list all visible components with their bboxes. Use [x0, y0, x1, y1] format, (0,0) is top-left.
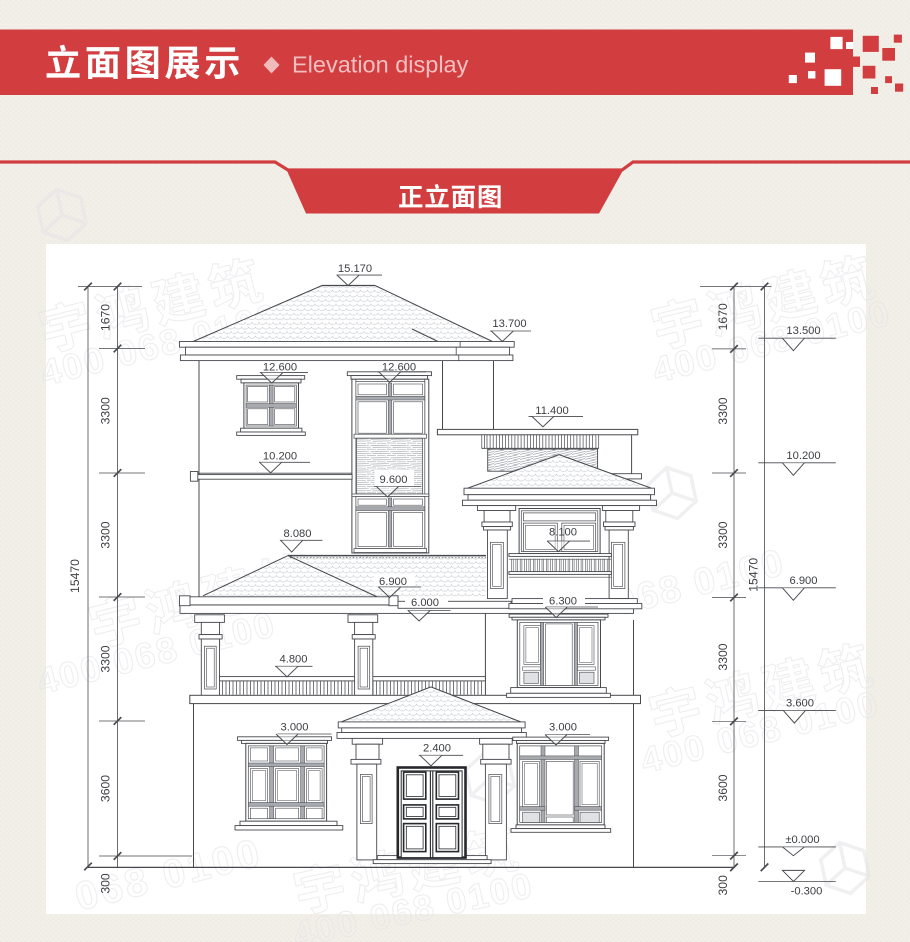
- svg-text:3.000: 3.000: [549, 722, 577, 734]
- svg-text:300: 300: [716, 875, 730, 896]
- svg-text:15470: 15470: [747, 558, 761, 592]
- svg-text:9.600: 9.600: [380, 474, 408, 486]
- svg-text:3300: 3300: [99, 645, 113, 672]
- svg-text:3300: 3300: [716, 397, 730, 424]
- svg-text:10.200: 10.200: [263, 451, 297, 463]
- svg-text:3600: 3600: [716, 774, 730, 801]
- svg-text:8.100: 8.100: [549, 527, 577, 539]
- svg-text:10.200: 10.200: [786, 450, 820, 462]
- svg-text:3300: 3300: [716, 521, 730, 548]
- svg-text:3600: 3600: [99, 775, 113, 802]
- svg-text:8.080: 8.080: [284, 528, 312, 540]
- svg-text:11.400: 11.400: [535, 405, 568, 417]
- svg-text:3.600: 3.600: [786, 698, 814, 710]
- svg-text:12.600: 12.600: [263, 362, 297, 374]
- svg-text:3.000: 3.000: [281, 722, 309, 734]
- svg-text:6.900: 6.900: [379, 576, 407, 588]
- svg-text:300: 300: [99, 873, 113, 894]
- svg-text:15.170: 15.170: [338, 263, 372, 275]
- svg-text:3300: 3300: [716, 643, 730, 670]
- svg-text:6.000: 6.000: [411, 597, 439, 609]
- svg-text:15470: 15470: [68, 559, 82, 593]
- svg-text:4.800: 4.800: [280, 654, 308, 666]
- svg-text:6.300: 6.300: [549, 596, 577, 608]
- svg-text:3300: 3300: [99, 397, 113, 424]
- svg-text:-0.300: -0.300: [791, 886, 823, 898]
- svg-text:Elevation display: Elevation display: [292, 52, 469, 78]
- svg-text:1670: 1670: [716, 303, 730, 330]
- svg-text:13.700: 13.700: [492, 318, 526, 330]
- svg-text:13.500: 13.500: [786, 325, 820, 337]
- svg-text:6.900: 6.900: [790, 575, 818, 587]
- svg-text:1670: 1670: [99, 304, 113, 331]
- svg-text:3300: 3300: [99, 521, 113, 548]
- svg-text:2.400: 2.400: [423, 743, 451, 755]
- svg-text:±0.000: ±0.000: [785, 834, 819, 846]
